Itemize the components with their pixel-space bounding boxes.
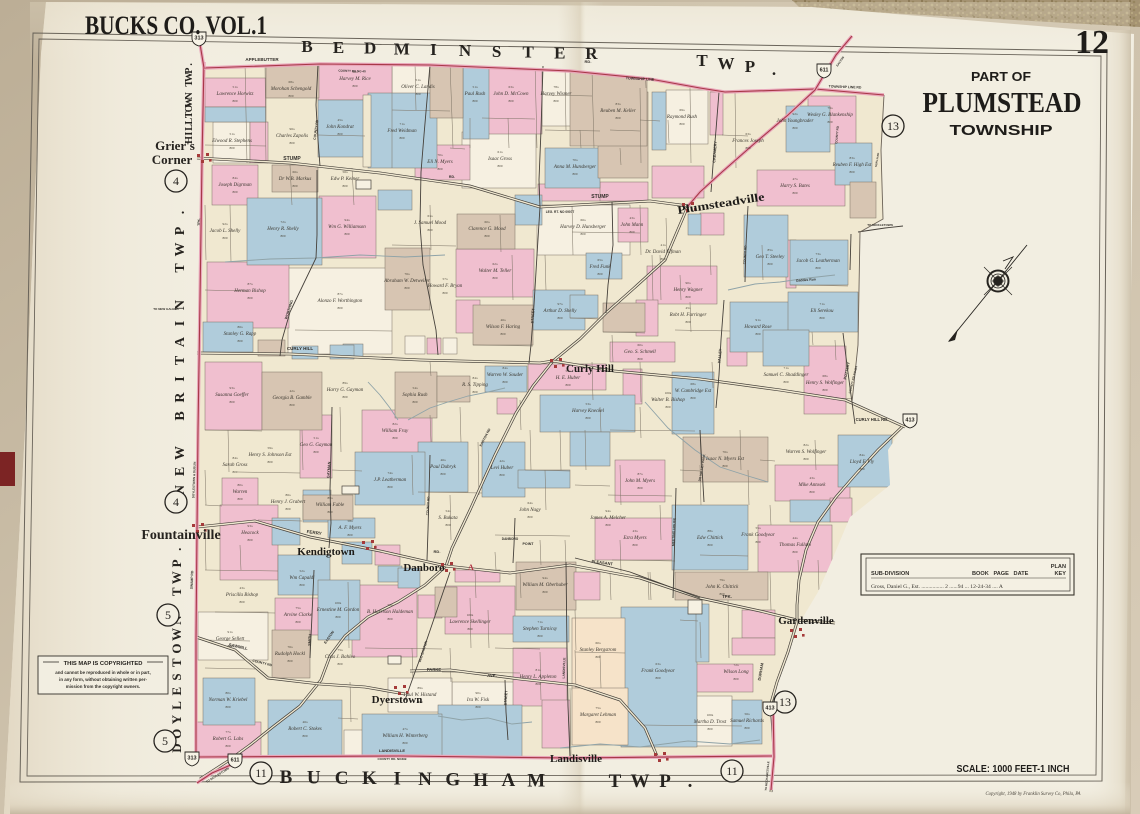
svg-text:800: 800 (335, 615, 340, 619)
svg-text:800: 800 (744, 726, 749, 730)
svg-text:52a: 52a (300, 569, 305, 573)
svg-text:TPK.: TPK. (722, 594, 732, 599)
svg-text:Thomas Fullam: Thomas Fullam (779, 543, 811, 548)
svg-text:T: T (173, 355, 188, 365)
svg-text:J. Samuel Mood: J. Samuel Mood (414, 221, 447, 226)
svg-text:Chas J. Bahleo: Chas J. Bahleo (325, 655, 356, 660)
svg-text:800: 800 (707, 543, 712, 547)
svg-text:800: 800 (803, 457, 808, 461)
svg-text:800: 800 (497, 164, 502, 168)
svg-text:W. Cambridge Est: W. Cambridge Est (675, 389, 712, 394)
svg-text:800: 800 (822, 388, 827, 392)
svg-text:87a: 87a (638, 472, 643, 476)
svg-text:800: 800 (467, 627, 472, 631)
svg-text:800: 800 (690, 396, 695, 400)
svg-text:800: 800 (229, 400, 234, 404)
svg-text:Henry S. Wolfinger: Henry S. Wolfinger (805, 381, 844, 386)
svg-text:SUB-DIVISION: SUB-DIVISION (871, 571, 909, 577)
svg-text:59a: 59a (268, 446, 273, 450)
svg-text:800: 800 (475, 705, 480, 709)
svg-text:85a: 85a (768, 248, 773, 252)
svg-text:Wm G. Williamson: Wm G. Williamson (328, 225, 366, 230)
svg-text:800: 800 (472, 99, 477, 103)
svg-text:51a: 51a (314, 436, 319, 440)
svg-text:Wm Capaldi: Wm Capaldi (289, 576, 315, 581)
svg-text:R: R (173, 392, 188, 403)
svg-text:46a: 46a (501, 318, 506, 322)
svg-text:Paul Dubryk: Paul Dubryk (429, 465, 456, 470)
svg-text:N: N (418, 769, 432, 790)
svg-text:E: E (173, 467, 188, 476)
svg-text:Geo G. Gayman: Geo G. Gayman (300, 443, 333, 448)
svg-text:A: A (468, 563, 474, 572)
svg-text:Henry J. Grabert: Henry J. Grabert (270, 500, 306, 505)
svg-text:W: W (173, 446, 188, 460)
svg-text:54a: 54a (446, 509, 451, 513)
svg-text:91a: 91a (228, 630, 233, 634)
svg-text:K: K (362, 768, 377, 789)
svg-text:800: 800 (299, 583, 304, 587)
svg-text:800: 800 (295, 620, 300, 624)
svg-text:Eli Serekou: Eli Serekou (809, 309, 834, 314)
svg-text:76a: 76a (723, 450, 728, 454)
svg-text:Eli N. Myers: Eli N. Myers (426, 160, 452, 165)
svg-text:800: 800 (239, 600, 244, 604)
svg-text:66a: 66a (581, 218, 586, 222)
svg-text:Geo T. Steeley: Geo T. Steeley (756, 255, 785, 260)
svg-text:800: 800 (472, 390, 477, 394)
svg-text:Heacock: Heacock (240, 531, 259, 536)
svg-text:STUMP: STUMP (283, 156, 301, 162)
svg-text:76a: 76a (288, 645, 293, 649)
svg-text:M: M (394, 39, 410, 58)
svg-text:81a: 81a (536, 668, 541, 672)
svg-text:Joseph Digrman: Joseph Digrman (218, 183, 252, 188)
svg-text:W: W (631, 771, 650, 792)
svg-text:SCALE: 1000 FEET-1 INCH: SCALE: 1000 FEET-1 INCH (957, 763, 1070, 775)
svg-text:800: 800 (280, 234, 285, 238)
svg-text:Landisville: Landisville (550, 753, 602, 765)
svg-text:54a: 54a (413, 386, 418, 390)
svg-text:I: I (184, 132, 195, 136)
svg-text:THIS MAP IS COPYRIGHTED: THIS MAP IS COPYRIGHTED (64, 661, 143, 667)
svg-text:R. S. Tipping: R. S. Tipping (461, 383, 488, 388)
svg-text:58a: 58a (348, 519, 353, 523)
svg-text:82a: 82a (804, 443, 809, 447)
svg-text:TPK.: TPK. (197, 218, 201, 226)
svg-text:800: 800 (484, 234, 489, 238)
svg-text:Elwood R. Stephens: Elwood R. Stephens (211, 139, 252, 144)
svg-text:800: 800 (859, 467, 864, 471)
svg-text:800: 800 (819, 316, 824, 320)
svg-text:Mike Antosek: Mike Antosek (798, 483, 827, 488)
svg-text:W: W (169, 571, 184, 584)
svg-text:800: 800 (285, 507, 290, 511)
svg-text:800: 800 (585, 416, 590, 420)
svg-text:800: 800 (767, 262, 772, 266)
svg-text:Harry G. Gayman: Harry G. Gayman (326, 388, 364, 393)
svg-text:800: 800 (392, 436, 397, 440)
svg-text:Dr W.B. Markus: Dr W.B. Markus (278, 177, 312, 182)
svg-text:Gardenville: Gardenville (778, 615, 834, 627)
svg-text:Curly Hill: Curly Hill (566, 363, 614, 375)
svg-text:B: B (280, 767, 293, 788)
svg-text:O: O (169, 644, 184, 654)
svg-text:800: 800 (508, 99, 513, 103)
svg-text:Y: Y (169, 714, 184, 724)
svg-text:800: 800 (289, 403, 294, 407)
svg-text:46a: 46a (441, 458, 446, 462)
svg-text:800: 800 (783, 380, 788, 384)
svg-text:Morohan Schengold: Morohan Schengold (270, 87, 312, 92)
svg-text:90a: 90a (476, 691, 481, 695)
svg-text:B: B (173, 411, 188, 420)
svg-text:Robert G. Labs: Robert G. Labs (212, 737, 244, 742)
svg-text:800: 800 (572, 172, 577, 176)
svg-text:43a: 43a (240, 586, 245, 590)
svg-text:G: G (445, 769, 460, 790)
svg-text:87a: 87a (338, 292, 343, 296)
svg-text:78a: 78a (554, 85, 559, 89)
svg-text:96a: 96a (290, 127, 295, 131)
svg-text:Ira W. Fisk: Ira W. Fisk (466, 698, 490, 703)
svg-text:.: . (173, 211, 188, 215)
svg-text:Fountainville: Fountainville (141, 528, 220, 543)
svg-text:74a: 74a (388, 471, 393, 475)
svg-text:800: 800 (288, 94, 293, 98)
svg-text:80a: 80a (238, 483, 243, 487)
svg-text:800: 800 (733, 677, 738, 681)
svg-text:75a: 75a (596, 706, 601, 710)
svg-text:Jacob L. Shelly: Jacob L. Shelly (210, 229, 241, 234)
svg-text:800: 800 (500, 332, 505, 336)
svg-text:84a: 84a (233, 176, 238, 180)
svg-text:Rudolph Hockl: Rudolph Hockl (274, 652, 306, 657)
svg-text:800: 800 (267, 460, 272, 464)
svg-text:Samuel Richards: Samuel Richards (730, 719, 764, 724)
svg-text:800: 800 (637, 486, 642, 490)
svg-text:800: 800 (527, 515, 532, 519)
svg-text:John Youngbrader: John Youngbrader (777, 119, 814, 124)
svg-text:800: 800 (287, 659, 292, 663)
svg-text:70a: 70a (438, 153, 443, 157)
svg-text:83a: 83a (850, 156, 855, 160)
svg-text:71a: 71a (820, 302, 825, 306)
svg-text:89a: 89a (328, 496, 333, 500)
svg-text:13: 13 (779, 695, 791, 709)
svg-text:800: 800 (605, 523, 610, 527)
svg-text:62a: 62a (493, 262, 498, 266)
svg-text:800: 800 (595, 655, 600, 659)
svg-text:Edw Chittick: Edw Chittick (696, 536, 724, 541)
svg-text:William M. Oberhuber: William M. Oberhuber (522, 583, 567, 588)
svg-text:43a: 43a (633, 529, 638, 533)
svg-text:13: 13 (887, 119, 899, 133)
svg-text:T: T (173, 263, 188, 273)
svg-text:PLAN: PLAN (1051, 564, 1066, 570)
svg-text:41a: 41a (661, 243, 666, 247)
svg-text:800: 800 (327, 510, 332, 514)
svg-text:Geo. S. Schmell: Geo. S. Schmell (624, 350, 656, 355)
svg-text:Walter M. Teller: Walter M. Teller (479, 269, 512, 274)
svg-text:11: 11 (726, 764, 738, 778)
svg-text:87a: 87a (248, 282, 253, 286)
svg-text:611: 611 (231, 758, 240, 764)
svg-text:and cannot be reproduced in wh: and cannot be reproduced in whole or in … (55, 670, 150, 675)
svg-text:5: 5 (162, 734, 168, 748)
svg-text:C: C (335, 768, 349, 789)
svg-text:800: 800 (232, 190, 237, 194)
svg-text:51a: 51a (473, 85, 478, 89)
svg-text:800: 800 (352, 84, 357, 88)
svg-text:RD.: RD. (434, 549, 441, 554)
svg-text:P: P (184, 68, 195, 74)
svg-text:94a: 94a (606, 509, 611, 513)
svg-text:51a: 51a (230, 132, 235, 136)
svg-text:.: . (169, 548, 184, 551)
svg-text:94a: 94a (345, 218, 350, 222)
svg-text:Robert C. Stokes: Robert C. Stokes (287, 727, 322, 732)
svg-text:Stanley Bergstrom: Stanley Bergstrom (580, 648, 617, 653)
svg-text:L: L (169, 701, 184, 710)
svg-text:800: 800 (247, 296, 252, 300)
svg-text:Isaac N. Myers Est: Isaac N. Myers Est (705, 457, 745, 462)
svg-text:800: 800 (792, 191, 797, 195)
svg-text:800: 800 (415, 92, 420, 96)
svg-text:Fred Weidman: Fred Weidman (386, 129, 417, 134)
svg-text:Paul Rush: Paul Rush (464, 92, 486, 97)
svg-text:47a: 47a (793, 177, 798, 181)
svg-text:63a: 63a (746, 132, 751, 136)
svg-text:Margaret Lehman: Margaret Lehman (579, 713, 617, 718)
svg-text:800: 800 (595, 720, 600, 724)
svg-text:P: P (745, 57, 755, 76)
svg-text:800: 800 (827, 120, 832, 124)
svg-text:46a: 46a (303, 720, 308, 724)
svg-text:66a: 66a (293, 170, 298, 174)
svg-text:800: 800 (229, 146, 234, 150)
svg-text:77a: 77a (226, 730, 231, 734)
svg-text:800: 800 (565, 383, 570, 387)
svg-text:94a: 94a (543, 576, 548, 580)
svg-text:Norman W. Kriebel: Norman W. Kriebel (208, 698, 248, 703)
svg-text:800: 800 (237, 339, 242, 343)
svg-text:11: 11 (255, 766, 267, 780)
svg-text:97a: 97a (558, 302, 563, 306)
svg-text:E: E (554, 43, 565, 62)
svg-text:Edw P. Keiner: Edw P. Keiner (330, 177, 360, 182)
svg-text:Copyright, 1948 by Franklin Su: Copyright, 1948 by Franklin Survey Co, P… (986, 790, 1082, 797)
svg-text:A: A (173, 336, 188, 347)
svg-text:56a: 56a (745, 712, 750, 716)
svg-text:Martha D. Trost: Martha D. Trost (693, 720, 727, 725)
svg-text:800: 800 (755, 540, 760, 544)
svg-text:Kendigtown: Kendigtown (297, 546, 354, 558)
svg-text:Harvey Wismer: Harvey Wismer (540, 92, 572, 97)
svg-text:800: 800 (292, 184, 297, 188)
svg-text:72a: 72a (734, 663, 739, 667)
svg-text:D: D (364, 39, 376, 58)
svg-text:800: 800 (427, 228, 432, 232)
svg-text:800: 800 (557, 316, 562, 320)
svg-text:Lawrence Skellinger: Lawrence Skellinger (448, 620, 490, 625)
svg-text:47a: 47a (403, 727, 408, 731)
svg-text:John D. McCown: John D. McCown (493, 92, 529, 97)
svg-text:T: T (523, 43, 535, 62)
svg-text:82a: 82a (393, 422, 398, 426)
svg-text:AVE.: AVE. (487, 673, 496, 678)
svg-text:800: 800 (247, 538, 252, 542)
svg-text:75a: 75a (296, 606, 301, 610)
svg-text:51a: 51a (416, 78, 421, 82)
svg-text:800: 800 (637, 357, 642, 361)
svg-text:800: 800 (849, 170, 854, 174)
svg-text:60a: 60a (596, 641, 601, 645)
svg-text:Susanna Goeffer: Susanna Goeffer (215, 393, 249, 398)
svg-text:Reuben F. High Est: Reuben F. High Est (832, 163, 872, 168)
svg-text:in any form, without obtaining: in any form, without obtaining written p… (59, 677, 147, 682)
svg-text:92a: 92a (223, 222, 228, 226)
svg-text:William Fable: William Fable (316, 503, 345, 508)
svg-text:800: 800 (492, 276, 497, 280)
svg-text:T: T (169, 658, 184, 667)
svg-text:89a: 89a (343, 381, 348, 385)
svg-text:P: P (169, 559, 184, 567)
svg-text:5: 5 (165, 608, 171, 622)
svg-text:Raymond Rush: Raymond Rush (666, 115, 698, 120)
svg-text:51a: 51a (233, 85, 238, 89)
svg-text:800: 800 (580, 232, 585, 236)
svg-text:U: U (307, 767, 321, 788)
svg-text:Robt H. Farringer: Robt H. Farringer (669, 313, 707, 318)
svg-text:Corner: Corner (152, 152, 193, 167)
svg-text:84a: 84a (473, 376, 478, 380)
svg-text:4: 4 (173, 495, 179, 509)
svg-text:N: N (184, 92, 195, 100)
svg-text:Harry S. Bates: Harry S. Bates (779, 184, 810, 189)
svg-text:800: 800 (502, 380, 507, 384)
svg-text:John M. Myers: John M. Myers (625, 479, 655, 484)
svg-text:Gross, Daniel G., Est. ......: Gross, Daniel G., Est. ................ … (871, 584, 1003, 590)
svg-text:Henry L. Appleton: Henry L. Appleton (519, 675, 557, 680)
svg-text:John Kondrat: John Kondrat (326, 125, 354, 130)
svg-text:800: 800 (237, 497, 242, 501)
svg-text:Sarah Gross: Sarah Gross (223, 463, 248, 468)
svg-text:800: 800 (342, 184, 347, 188)
svg-text:800: 800 (685, 295, 690, 299)
svg-text:800: 800 (809, 490, 814, 494)
svg-text:Walter B. Bishop: Walter B. Bishop (651, 398, 685, 403)
svg-text:800: 800 (437, 167, 442, 171)
svg-text:.: . (688, 771, 693, 792)
svg-text:COUNTY RD. NO399: COUNTY RD. NO399 (378, 757, 407, 761)
svg-text:800: 800 (815, 266, 820, 270)
svg-text:B. Harrison Haldeman: B. Harrison Haldeman (367, 610, 413, 615)
svg-text:800: 800 (440, 472, 445, 476)
svg-text:313: 313 (187, 756, 196, 762)
svg-text:800: 800 (792, 550, 797, 554)
svg-text:92a: 92a (793, 112, 798, 116)
svg-text:George Sellett: George Sellett (216, 637, 245, 642)
svg-text:W: W (173, 243, 188, 257)
svg-text:T: T (169, 587, 184, 596)
svg-text:PART OF: PART OF (971, 69, 1031, 84)
svg-text:Alonzo F. Worthington: Alonzo F. Worthington (317, 299, 363, 304)
svg-text:800: 800 (442, 291, 447, 295)
svg-text:Stanley G. Rapp: Stanley G. Rapp (224, 332, 257, 337)
svg-text:Frank Goodyear: Frank Goodyear (740, 533, 775, 538)
svg-text:Priscilla Bishop: Priscilla Bishop (225, 593, 259, 598)
svg-text:W: W (718, 54, 735, 73)
svg-text:Wilson F. Haring: Wilson F. Haring (486, 325, 521, 330)
svg-text:PLUMSTEAD: PLUMSTEAD (923, 87, 1082, 119)
svg-text:Warren: Warren (233, 490, 248, 495)
svg-text:Harvey D. Hunsberger: Harvey D. Hunsberger (559, 225, 606, 230)
svg-text:S: S (492, 42, 501, 61)
svg-text:Harvey Kneckel: Harvey Kneckel (571, 409, 605, 414)
svg-text:64a: 64a (528, 501, 533, 505)
svg-text:Howard Rose: Howard Rose (743, 325, 772, 330)
svg-text:63a: 63a (428, 214, 433, 218)
svg-text:800: 800 (402, 741, 407, 745)
svg-text:POINT: POINT (523, 542, 535, 546)
svg-text:800: 800 (537, 634, 542, 638)
svg-text:800: 800 (313, 450, 318, 454)
svg-text:800: 800 (222, 236, 227, 240)
svg-text:Herman Bishop: Herman Bishop (233, 289, 266, 294)
svg-text:BOOK PAGE DATE: BOOK PAGE DATE (972, 571, 1029, 577)
svg-text:J.P. Leatherman: J.P. Leatherman (374, 478, 407, 483)
svg-text:Frank Goodyear: Frank Goodyear (640, 669, 675, 674)
svg-text:72a: 72a (281, 220, 286, 224)
svg-text:Georgia B. Gamble: Georgia B. Gamble (272, 396, 312, 401)
svg-text:John K. Chittick: John K. Chittick (706, 585, 739, 590)
svg-text:800: 800 (387, 617, 392, 621)
svg-text:Fred Funk: Fred Funk (588, 265, 611, 270)
svg-text:800: 800 (225, 744, 230, 748)
svg-text:800: 800 (404, 286, 409, 290)
svg-text:APPLEBUTTER: APPLEBUTTER (245, 57, 279, 62)
svg-text:PARKE: PARKE (427, 667, 442, 672)
svg-text:63a: 63a (656, 662, 661, 666)
svg-text:80a: 80a (226, 691, 231, 695)
svg-text:93a: 93a (248, 524, 253, 528)
svg-text:Stephen Turnicsy: Stephen Turnicsy (523, 627, 558, 632)
svg-text:A: A (502, 770, 516, 791)
svg-text:800: 800 (535, 682, 540, 686)
svg-text:Lawrence Horwitz: Lawrence Horwitz (216, 92, 254, 97)
svg-text:CURLY HILL: CURLY HILL (287, 346, 314, 351)
svg-text:Dr. David Elfman: Dr. David Elfman (644, 250, 681, 255)
svg-text:79a: 79a (828, 106, 833, 110)
svg-text:STUMP: STUMP (591, 194, 609, 200)
svg-text:88a: 88a (708, 529, 713, 533)
svg-text:68a: 68a (823, 374, 828, 378)
svg-text:CURLY HILL RD.: CURLY HILL RD. (856, 417, 889, 422)
svg-text:800: 800 (665, 405, 670, 409)
svg-text:800: 800 (337, 306, 342, 310)
svg-text:100a: 100a (467, 613, 474, 617)
svg-text:E: E (169, 687, 184, 696)
svg-text:Levi Huber: Levi Huber (490, 466, 514, 471)
svg-text:mission from the copyright own: mission from the copyright owners. (66, 684, 140, 689)
svg-text:Samuel C. Shaddinger: Samuel C. Shaddinger (764, 373, 809, 378)
svg-text:93a: 93a (230, 386, 235, 390)
svg-text:Sophia Rush: Sophia Rush (402, 393, 428, 398)
svg-text:71a: 71a (400, 122, 405, 126)
svg-text:LANDISVILLE: LANDISVILLE (562, 657, 567, 678)
svg-text:Warren W. Souder: Warren W. Souder (487, 373, 523, 378)
